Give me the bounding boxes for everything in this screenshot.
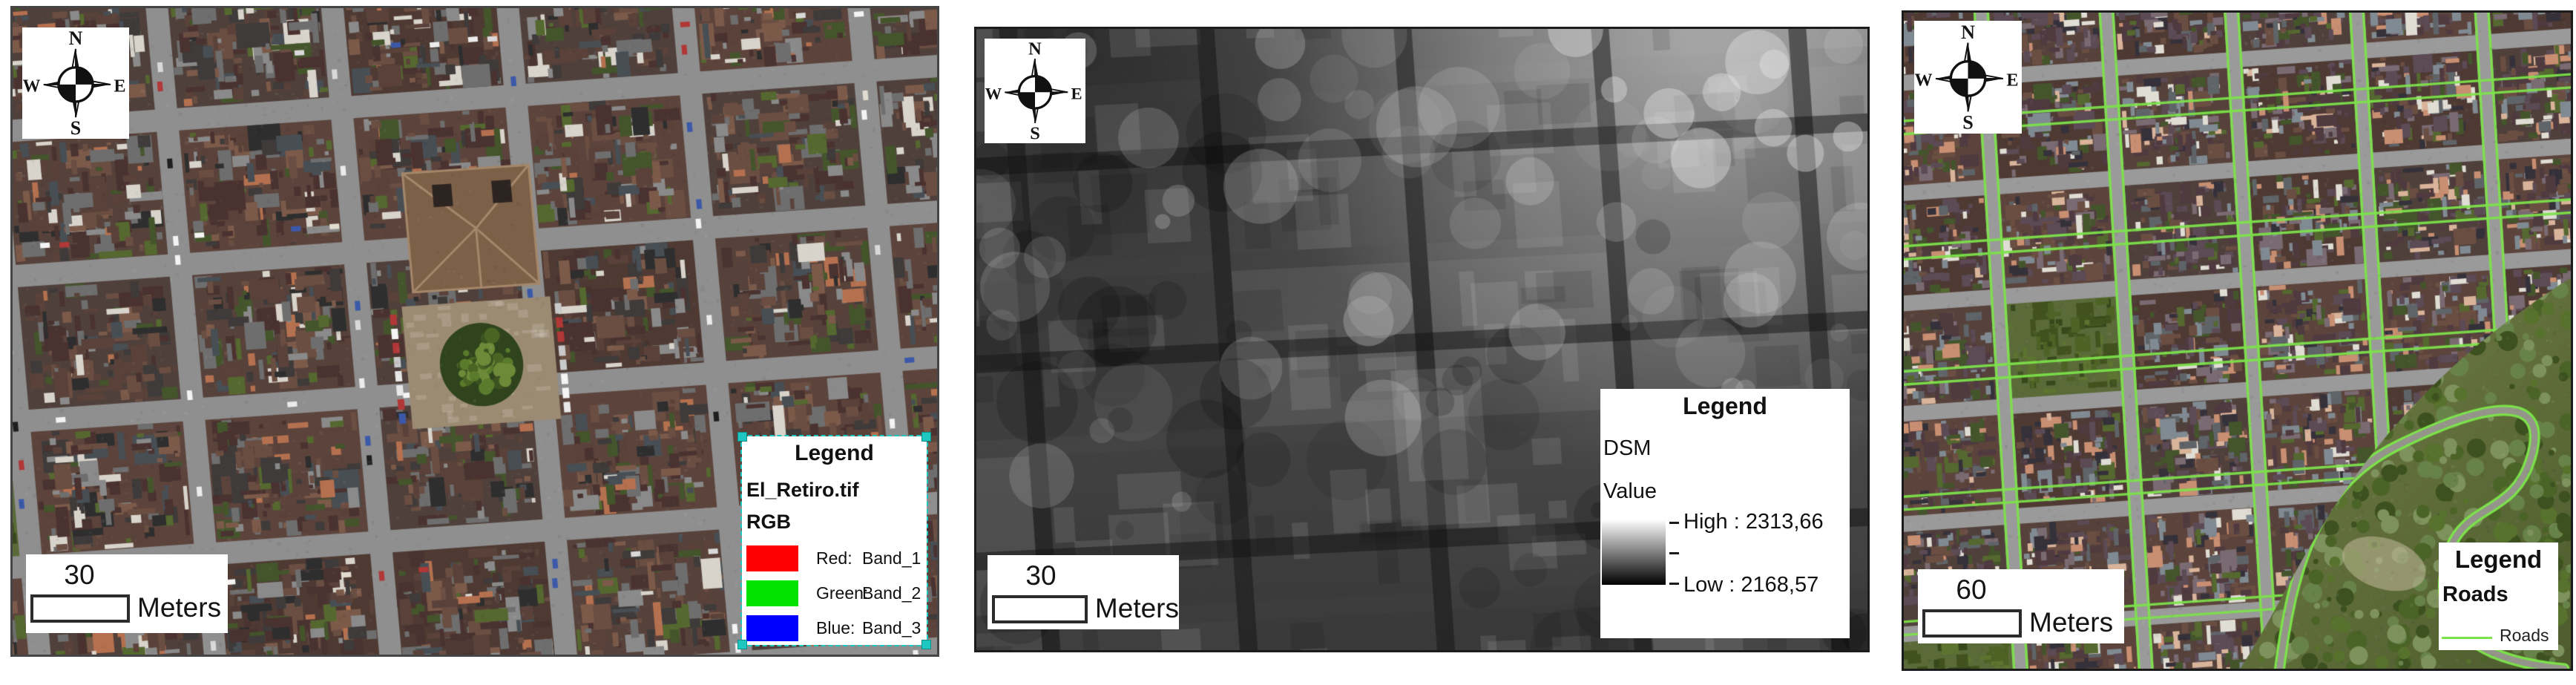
blue-band-name: Band_3	[862, 618, 921, 638]
scale-bar[interactable]: 30 Meters	[988, 555, 1179, 629]
compass-n-label: N	[1028, 39, 1042, 59]
green-band-swatch	[746, 580, 798, 606]
legend-title: Legend	[1600, 393, 1850, 420]
legend-low-value: Low : 2168,57	[1683, 573, 1818, 597]
north-arrow[interactable]: N S W E	[22, 27, 129, 139]
compass-rose-icon: N S W E	[22, 27, 129, 139]
blue-band-channel: Blue:	[816, 618, 862, 638]
compass-w-label: W	[22, 77, 40, 96]
selection-handle[interactable]	[921, 432, 931, 442]
compass-w-label: W	[985, 84, 1002, 102]
scale-bar-unit: Meters	[2029, 608, 2113, 638]
dsm-color-ramp	[1602, 520, 1666, 585]
legend-layer-name: El_Retiro.tif	[746, 479, 927, 502]
compass-s-label: S	[70, 117, 81, 139]
legend-item-red: Red: Band_1	[742, 541, 927, 576]
scale-bar-value: 30	[992, 560, 1090, 592]
scale-bar-segment	[30, 594, 130, 623]
legend-layer-name: DSM	[1603, 436, 1651, 461]
ramp-tick-mid	[1669, 552, 1679, 554]
north-arrow[interactable]: N S W E	[1914, 21, 2022, 134]
compass-s-label: S	[1030, 124, 1040, 143]
compass-n-label: N	[1961, 22, 1975, 43]
map-figure-stage: N S W E 30 Meters Legend El_Retiro.tif R…	[0, 0, 2576, 685]
legend-item-blue: Blue: Band_3	[742, 611, 927, 646]
scale-bar[interactable]: 60 Meters	[1918, 569, 2124, 643]
blue-band-swatch	[746, 615, 798, 641]
selection-handle[interactable]	[921, 640, 931, 649]
legend-orthophoto[interactable]: Legend El_Retiro.tif RGB Red: Band_1 Gre…	[742, 436, 927, 645]
scale-bar-unit: Meters	[137, 593, 221, 623]
compass-rose-icon: N S W E	[1914, 21, 2022, 134]
legend-layer-name: Roads	[2442, 583, 2508, 607]
selection-handle[interactable]	[737, 640, 747, 649]
compass-e-label: E	[114, 77, 126, 96]
ramp-tick-high	[1669, 522, 1679, 524]
legend-dsm[interactable]: Legend DSM Value High : 2313,66 Low : 21…	[1600, 389, 1850, 638]
map-frame-orthophoto[interactable]: N S W E 30 Meters Legend El_Retiro.tif R…	[10, 6, 939, 657]
legend-roads[interactable]: Legend Roads Roads	[2439, 543, 2558, 650]
green-band-name: Band_2	[862, 583, 921, 603]
red-band-swatch	[746, 545, 798, 571]
compass-n-label: N	[69, 27, 83, 49]
scale-bar-value: 60	[1922, 574, 2020, 606]
legend-layer-type: RGB	[746, 511, 927, 534]
legend-item-green: Green: Band_2	[742, 576, 927, 611]
compass-w-label: W	[1914, 71, 1932, 91]
selection-handle[interactable]	[737, 432, 747, 442]
map-frame-dsm[interactable]: N S W E 30 Meters Legend DSM Value High …	[974, 27, 1870, 652]
map-frame-roads[interactable]: N S W E 60 Meters Legend Roads Roads	[1902, 10, 2573, 671]
roads-line-symbol	[2442, 637, 2492, 639]
scale-bar-segment	[992, 595, 1088, 623]
scale-bar[interactable]: 30 Meters	[26, 554, 228, 633]
legend-title: Legend	[2439, 545, 2558, 574]
scale-bar-unit: Meters	[1095, 594, 1179, 623]
scale-bar-value: 30	[30, 559, 128, 591]
compass-s-label: S	[1962, 112, 1974, 134]
roads-item-label: Roads	[2500, 626, 2549, 646]
scale-bar-segment	[1922, 609, 2022, 638]
legend-value-label: Value	[1603, 479, 1657, 504]
red-band-name: Band_1	[862, 548, 921, 568]
compass-e-label: E	[2006, 71, 2018, 91]
north-arrow[interactable]: N S W E	[985, 39, 1085, 143]
green-band-channel: Green:	[816, 583, 862, 603]
compass-e-label: E	[1071, 84, 1082, 102]
legend-title: Legend	[742, 441, 927, 466]
ramp-tick-low	[1669, 583, 1679, 585]
legend-high-value: High : 2313,66	[1683, 510, 1824, 534]
compass-rose-icon: N S W E	[985, 39, 1085, 143]
red-band-channel: Red:	[816, 548, 862, 568]
